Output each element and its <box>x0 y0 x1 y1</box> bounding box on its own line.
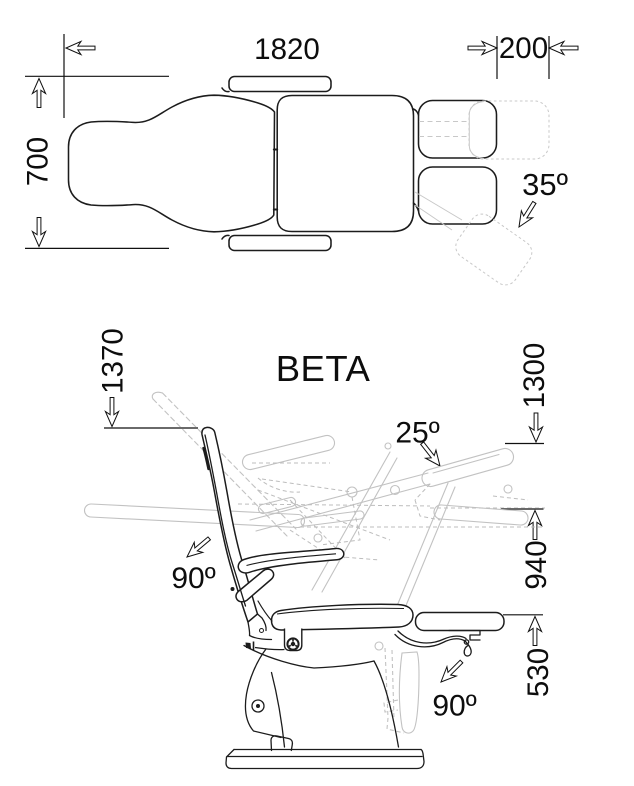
svg-text:530: 530 <box>522 648 555 697</box>
svg-text:25º: 25º <box>395 417 439 450</box>
svg-text:1300: 1300 <box>518 343 551 409</box>
svg-text:90º: 90º <box>432 690 476 723</box>
svg-text:BETA: BETA <box>276 348 371 389</box>
svg-text:700: 700 <box>22 137 55 186</box>
svg-text:1820: 1820 <box>254 33 320 66</box>
svg-text:1370: 1370 <box>97 328 130 394</box>
svg-text:90º: 90º <box>171 562 215 595</box>
svg-text:200: 200 <box>499 32 548 65</box>
svg-text:35º: 35º <box>522 167 568 202</box>
svg-text:940: 940 <box>520 540 553 589</box>
